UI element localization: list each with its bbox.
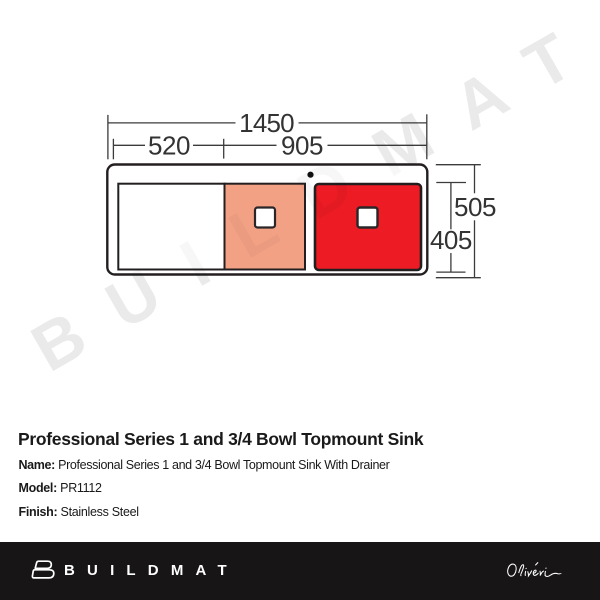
svg-text:505: 505 bbox=[454, 192, 496, 222]
svg-text:520: 520 bbox=[148, 131, 190, 161]
svg-text:405: 405 bbox=[430, 225, 472, 255]
